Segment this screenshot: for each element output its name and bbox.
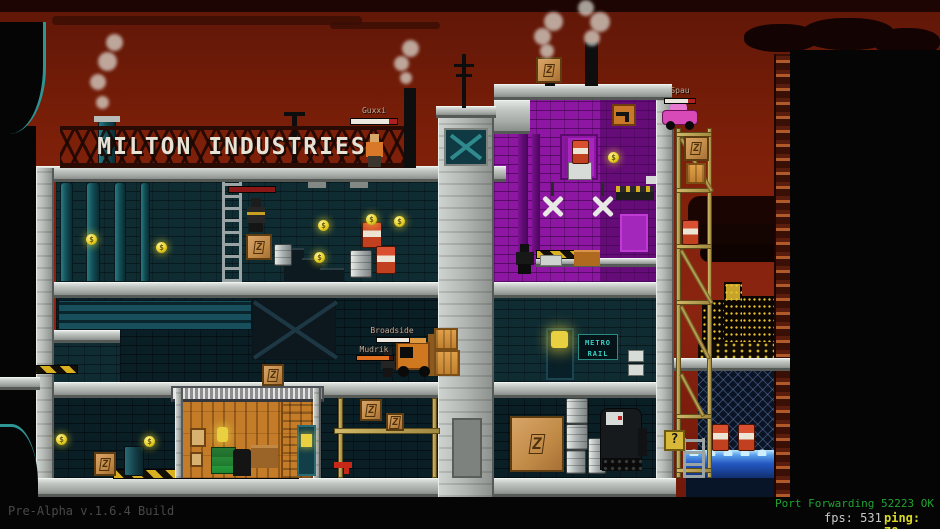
dropped-gun-grip [344,467,349,474]
crate: Z [94,452,116,476]
player-health-guxxi [350,118,398,125]
smoke-puff [106,34,123,51]
build-version-label: Pre-Alpha v.1.6.4 Build [8,504,174,518]
wall-pipe [60,182,73,282]
left-ledge [0,377,40,390]
wall-picture [190,452,203,467]
purple-pipe [518,134,528,252]
forklift-crate [434,328,458,350]
enemy-head [251,198,261,207]
coin: $ [394,216,405,227]
crate: Z [246,234,272,260]
yard-platform [672,358,792,371]
smoke-puff [394,56,409,71]
car-wheel [666,121,675,130]
milton-sign-text: MILTON INDUSTRIES [97,134,366,160]
supply-box [686,163,706,184]
player-guxxi-body [366,142,383,157]
purple-chimney [585,42,598,86]
coin: $ [86,234,97,245]
shelf-box [628,350,644,362]
port-forwarding-status: Port Forwarding 52223 OK [700,497,934,510]
gun-shop-sign-grip [625,115,629,122]
tower-antenna-bar [456,74,472,77]
forklift-wheel [398,366,409,377]
explosive-barrel [362,222,382,248]
player-health-mudrik [356,355,394,361]
scaffold-bar [676,188,712,193]
tower-cap [436,106,496,118]
crate: Z [386,413,404,431]
smoke-puff [540,44,554,58]
conveyor-base [616,192,654,200]
crate: Z [262,364,284,386]
metal-barrel [274,244,292,266]
explosive-barrel [682,220,699,245]
smoke-puff [98,52,117,71]
smog-streak [330,22,440,29]
scaffold-bar [676,300,712,305]
smoke-puff [402,40,419,57]
enemy-health-bar [228,186,276,193]
ceiling-lamp [308,182,326,188]
crate-mark: Z [389,416,401,429]
metal-barrel [566,398,588,424]
appliance [568,162,592,180]
coin: $ [144,436,155,447]
wall-lamp [551,331,568,348]
ninja-head [520,244,529,252]
fan-rod [601,182,604,196]
player-health-spau [664,98,696,104]
coin: $ [608,152,619,163]
scaffold-bar [676,414,712,419]
purple-pipe [532,134,540,252]
mid-floor-beam [36,282,672,298]
metro-sign-line1: METRO [579,338,617,349]
office-desk [251,445,278,468]
tower-antenna [462,54,466,108]
large-crate: Z [510,416,564,472]
explosive-barrel [572,140,589,164]
player-name-broadside: Broadside [360,326,424,335]
antenna-crossbar [284,112,305,116]
wall-lamp [217,427,228,442]
skyline-tower-lights [726,284,740,300]
metro-sign: METRO RAIL [578,334,618,360]
crate-mark: Z [253,241,265,254]
void-right [790,50,940,529]
stair-step [320,268,344,282]
ninja-legs [518,264,531,274]
player-name-mudrik: Mudrik [342,345,406,354]
wall-picture [190,428,206,447]
mech-tread [602,458,642,471]
forklift-crate [434,350,460,376]
smoke-puff [534,28,551,45]
ping-value: 78 [884,525,898,529]
smoke-puff [578,0,594,16]
purple-window [620,214,648,252]
explosive-barrel [376,246,396,274]
door-window [301,434,312,447]
ping-label: ping: [884,511,920,525]
player-name-guxxi: Guxxi [342,106,406,115]
player-name-spau: Spau [648,86,712,95]
ground-slab [36,478,676,497]
coin: $ [314,252,325,263]
mech-arm [638,428,647,456]
fps-counter: fps: 531 [824,511,882,525]
chimney-cap [94,116,120,122]
milton-sign: MILTON INDUSTRIES [60,126,404,168]
game-viewport[interactable]: MILTON INDUSTRIES Z $ $ $ $ $ $ Z [0,0,940,529]
crate: Z [360,399,382,421]
purple-roof-beam [494,84,672,100]
player-mudrik-legs [383,368,393,377]
shelf-box [628,364,644,376]
ladder [222,182,242,282]
coin: $ [156,242,167,253]
garage-awning [171,386,324,402]
crate-mark: Z [365,404,377,417]
explosive-barrel [738,424,755,451]
coin: $ [318,220,329,231]
smoke-puff [90,74,106,90]
scaffold-pole [432,398,437,478]
fps-value: 531 [860,511,882,525]
smoke-puff [584,30,600,46]
tower-door [452,418,482,478]
metal-barrel [566,450,586,474]
crate: Z [684,136,709,161]
chimney-pipe [404,88,416,168]
roof-beam [36,166,506,182]
fan-rod [551,182,554,196]
explosive-barrel [712,424,729,451]
player-health-broadside [376,337,410,343]
water-deep [686,478,786,497]
smoke-puff [96,96,109,109]
tower-antenna-bar [454,64,474,67]
fps-label: fps: [824,511,853,525]
parapet-block [494,100,530,134]
left-wall-column [36,168,54,497]
crate-mark: Z [99,458,111,471]
smoke-puff [544,12,563,31]
player-guxxi-legs [368,156,381,167]
white-table [540,255,562,266]
wall-pipe [86,182,100,282]
enemy-body [247,207,265,223]
mystery-box: ? [664,430,685,451]
enemy-legs [249,223,263,232]
crate-mark: Z [543,64,555,77]
metal-barrel [566,424,588,450]
scaffold-ladder [683,438,705,478]
sky-top-band [0,0,940,12]
wall-pipe [140,182,150,282]
smog-streak [52,16,362,25]
smoke-puff [590,12,610,32]
coin: $ [366,214,377,225]
metro-sign-line2: RAIL [579,349,617,360]
ping-counter: ping: 78 [884,511,940,529]
garage-column [175,388,183,478]
teal-door [297,425,316,476]
forklift-wheel [419,366,430,377]
lower-floor-beam [36,382,672,398]
mech-eye [618,416,622,420]
crate-mark: Z [267,369,279,382]
crate-mark: Z [691,142,703,155]
smoke-puff [400,72,412,84]
teal-barrel [124,446,144,476]
dropped-gun [334,462,352,468]
orange-desk [574,250,600,266]
crate-mark: Z [529,434,545,454]
office-chair [233,449,251,476]
car-wheel [685,121,694,130]
horizontal-pipes [58,300,252,330]
wall-pipe [114,182,126,282]
metal-barrel [350,250,372,278]
coin: $ [56,434,67,445]
conveyor-hook [646,176,656,184]
roof-crate: Z [536,57,562,83]
ceiling-lamp [350,182,368,188]
